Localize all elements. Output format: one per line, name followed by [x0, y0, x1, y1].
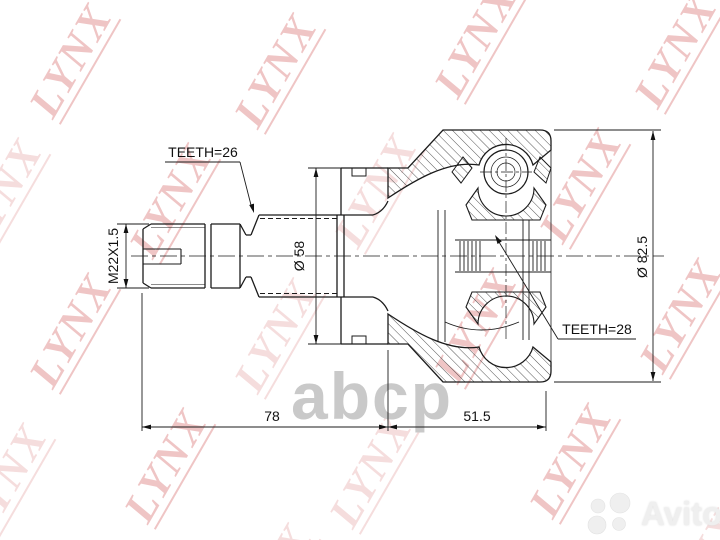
- screenshot-root: LYNX LYNX LYNX LYNX LYNX LYNX LYNX LYNX …: [0, 0, 720, 540]
- housing-lower-shell: [388, 314, 551, 382]
- label-shaft-length: 78: [264, 408, 280, 424]
- label-thread-spec: M22X1.5: [105, 228, 121, 284]
- joint-interior: [438, 138, 551, 362]
- cv-joint-technical-drawing: TEETH=26 TEETH=28 M22X1.5 Ø 58 Ø 82.5 78…: [0, 0, 720, 540]
- label-boot-seat-diameter: Ø 58: [291, 241, 307, 272]
- label-housing-length: 51.5: [463, 408, 490, 424]
- label-teeth-outer: TEETH=26: [168, 144, 238, 160]
- label-teeth-inner: TEETH=28: [562, 321, 632, 337]
- shaft-outline: [143, 201, 388, 311]
- leader-teeth-outer: [165, 162, 254, 213]
- label-housing-diameter: Ø 82.5: [634, 236, 650, 278]
